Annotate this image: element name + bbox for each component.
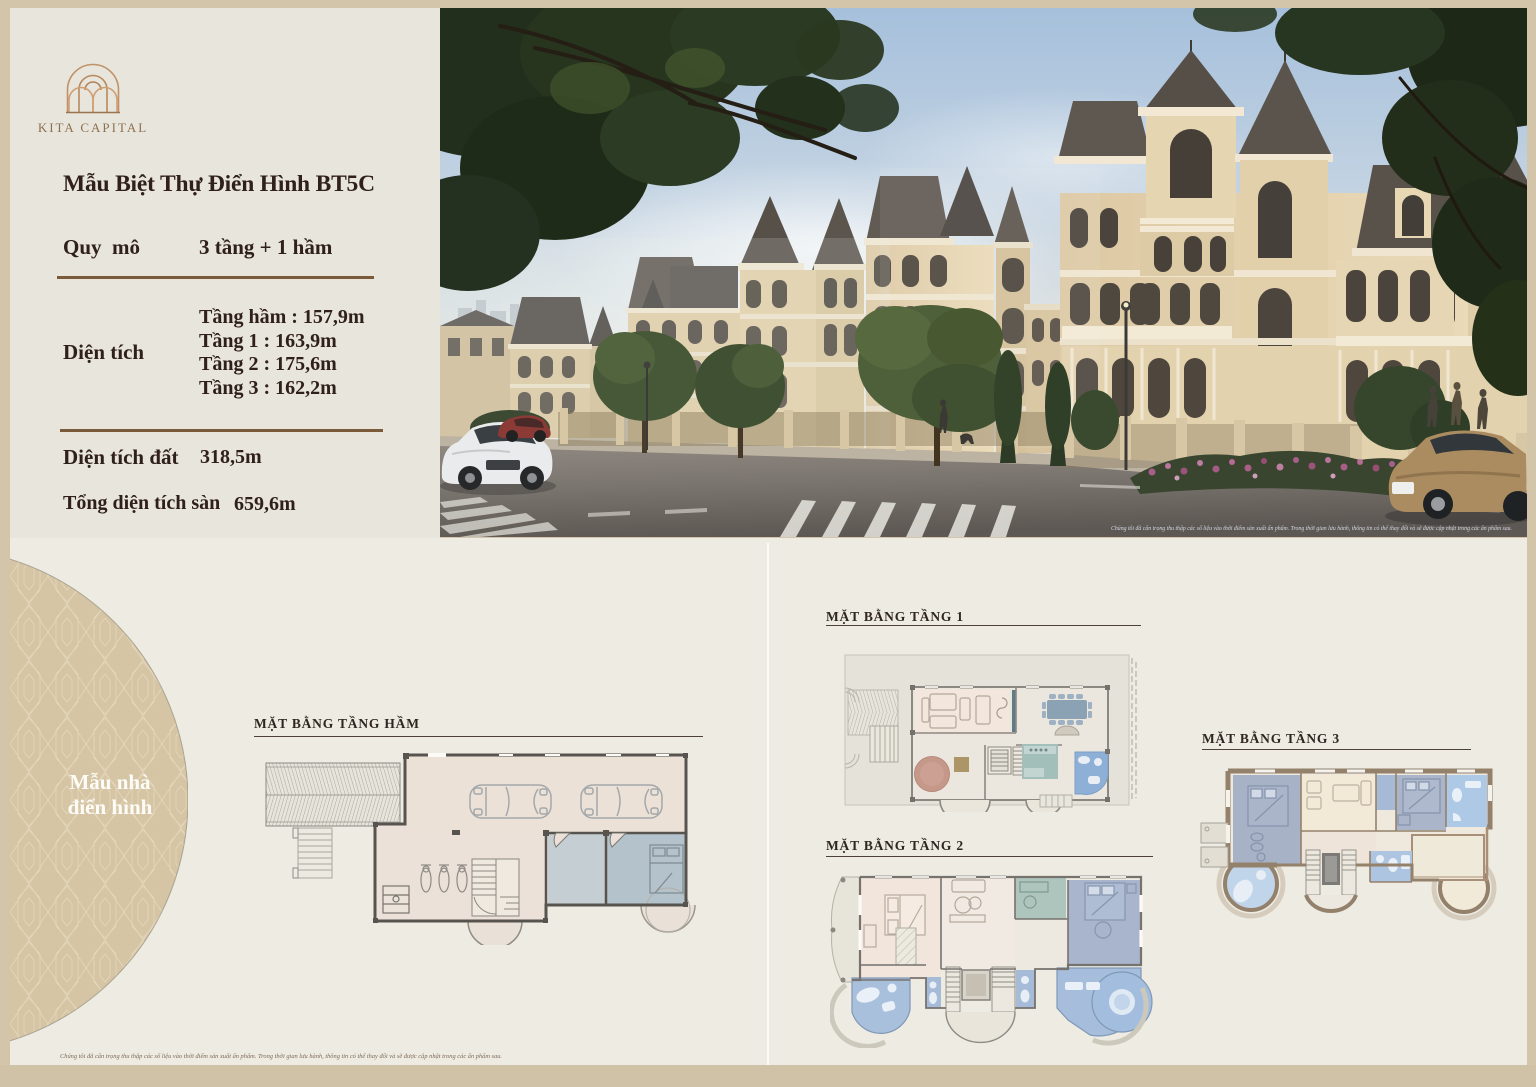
svg-text:Chúng tôi đã cẩn trọng thu thậ: Chúng tôi đã cẩn trọng thu thập các số l… <box>1111 525 1512 532</box>
svg-text:KITA CAPITAL: KITA CAPITAL <box>38 120 148 135</box>
svg-text:Mẫu nhà: Mẫu nhà <box>69 770 151 794</box>
svg-text:điển hình: điển hình <box>68 795 153 819</box>
